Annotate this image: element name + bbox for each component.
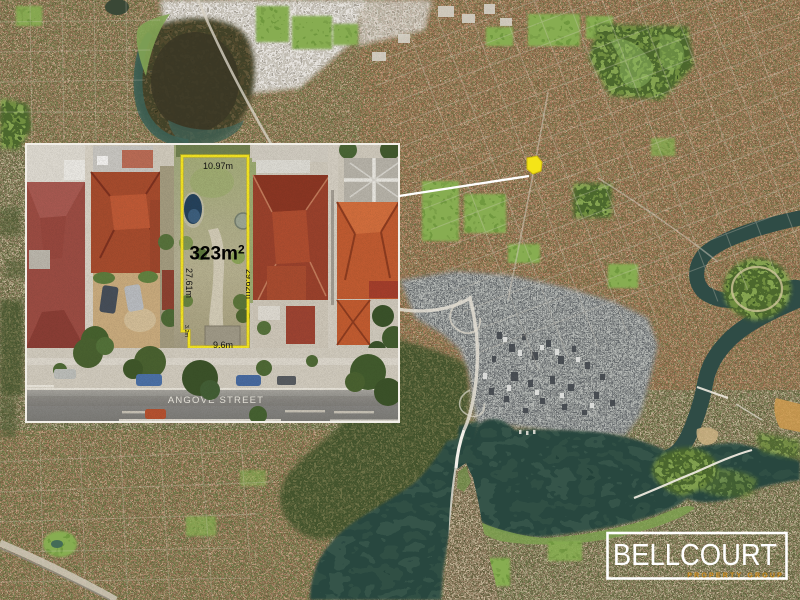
svg-text:BELLCOURT: BELLCOURT xyxy=(613,538,777,572)
svg-text:PROPERTY GROUP: PROPERTY GROUP xyxy=(687,573,784,580)
